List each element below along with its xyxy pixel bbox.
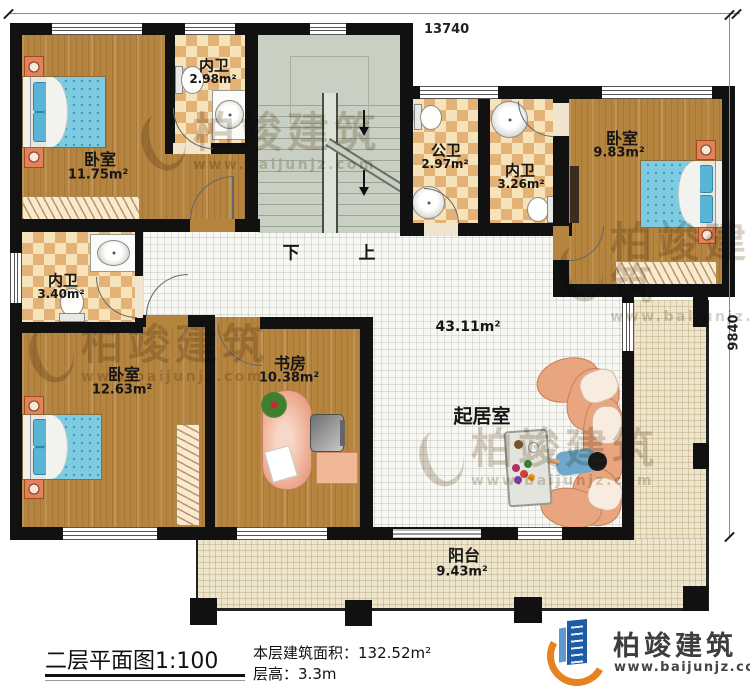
coffee-table: [503, 429, 552, 508]
door-opening: [424, 223, 458, 236]
public-bath-area: 2.97m²: [421, 158, 468, 170]
window: [310, 23, 346, 35]
door-opening: [190, 219, 235, 232]
top-dimension-line: [8, 13, 740, 14]
flowers: [524, 460, 532, 468]
bed-pillow: [699, 195, 713, 223]
table-plate: [528, 442, 539, 453]
bed-pillow: [33, 112, 47, 142]
stairs-down-label: 下: [283, 246, 300, 263]
wall: [360, 317, 373, 527]
balcony-railing-bottom: [196, 608, 709, 611]
window: [420, 86, 498, 99]
stairs-arrow-icon: [363, 170, 365, 192]
wall: [693, 297, 708, 327]
bedroom1-area: 11.75m²: [68, 169, 128, 182]
window: [10, 253, 22, 303]
right-dimension-line: [729, 15, 730, 537]
chair-armrest: [340, 420, 345, 446]
stairs-arrow-icon: [363, 110, 365, 132]
wall: [165, 35, 175, 153]
company-website: www.baijunjz.com: [614, 660, 750, 675]
balcony-column: [190, 598, 217, 625]
table-plate: [514, 440, 523, 449]
wall: [260, 317, 373, 329]
sofa-cushion: [592, 406, 622, 444]
bed-pillow: [699, 165, 713, 193]
balcony-column: [693, 443, 709, 469]
nightstand: [698, 226, 716, 244]
right-dimension-label: 9840: [727, 314, 742, 350]
bath2-area: 3.26m²: [497, 178, 544, 190]
company-name: 柏竣建筑: [613, 624, 737, 663]
bed-headboard: [23, 415, 31, 479]
door-opening: [146, 315, 188, 327]
study-area: 10.38m²: [259, 372, 319, 385]
window: [237, 527, 327, 540]
top-dimension-label: 13740: [424, 22, 469, 37]
window: [63, 527, 157, 540]
nightstand: [24, 396, 44, 416]
window: [52, 23, 142, 35]
stairs-handrail: [322, 93, 338, 233]
bath1-area: 2.98m²: [189, 73, 236, 85]
wall: [10, 322, 143, 333]
window: [518, 527, 562, 540]
dim-tick: [3, 9, 14, 20]
bed-pillow: [33, 447, 47, 475]
bed-headboard: [23, 77, 31, 147]
wall: [553, 284, 735, 297]
sink-icon: [97, 240, 130, 266]
flowers: [512, 464, 520, 472]
office-chair: [310, 414, 344, 452]
floor-height-line: 层高：3.3m: [253, 663, 336, 684]
bedroom1-label: 卧室: [84, 152, 116, 168]
nightstand: [24, 146, 44, 168]
wall: [478, 99, 490, 223]
door-leaf: [232, 176, 234, 219]
bedroom3-label: 卧室: [108, 367, 140, 383]
window: [622, 303, 634, 351]
logo-building-icon: [567, 619, 587, 665]
tv-cabinet: [570, 166, 579, 223]
side-table: [316, 452, 358, 484]
balcony-column: [345, 600, 372, 626]
balcony-area: 9.43m²: [436, 566, 487, 579]
door-opening: [553, 103, 569, 136]
balcony-column: [514, 597, 542, 623]
balcony-label: 阳台: [448, 548, 480, 564]
door-opening: [553, 226, 569, 260]
stairs-up-label: 上: [359, 246, 376, 263]
toilet-icon: [527, 197, 549, 222]
window: [602, 86, 712, 99]
bed-pillow: [33, 419, 47, 447]
flowers: [514, 476, 522, 484]
bed: [640, 160, 724, 228]
sink-icon: [215, 100, 244, 129]
nightstand: [24, 56, 44, 77]
hall-area: 43.11m²: [435, 320, 500, 334]
bed: [22, 414, 102, 480]
wall: [245, 35, 258, 231]
bed: [22, 76, 106, 148]
wardrobe: [176, 424, 200, 526]
plant-icon: [261, 392, 287, 418]
logo-building-icon: [559, 627, 566, 662]
wall: [400, 23, 413, 236]
plan-title: 二层平面图1:100: [45, 643, 218, 675]
flowers: [528, 474, 535, 481]
wall: [205, 315, 215, 527]
balcony-sliding-door: [393, 529, 481, 538]
toilet-tank: [59, 313, 85, 322]
title-underline: [45, 674, 245, 677]
company-logo: 柏竣建筑 www.baijunjz.com: [545, 616, 745, 686]
toilet-icon: [420, 105, 442, 130]
window: [185, 23, 235, 35]
balcony-column: [683, 586, 708, 611]
wardrobe: [615, 261, 717, 285]
living-label: 起居室: [453, 408, 510, 427]
bath3-area: 3.40m²: [37, 288, 84, 300]
floor-plan-canvas: 13740 9840: [0, 0, 750, 691]
bed-pillow: [33, 82, 47, 112]
bedroom2-area: 9.83m²: [593, 147, 644, 160]
wardrobe: [22, 196, 140, 221]
bedroom3-area: 12.63m²: [92, 384, 152, 397]
floor-area-line: 本层建筑面积：132.52m²: [253, 642, 431, 663]
person-head: [588, 452, 607, 471]
nightstand: [24, 479, 44, 499]
title-underline-thin: [45, 680, 245, 681]
nightstand: [696, 140, 716, 160]
balcony-floor-right: [634, 300, 708, 538]
